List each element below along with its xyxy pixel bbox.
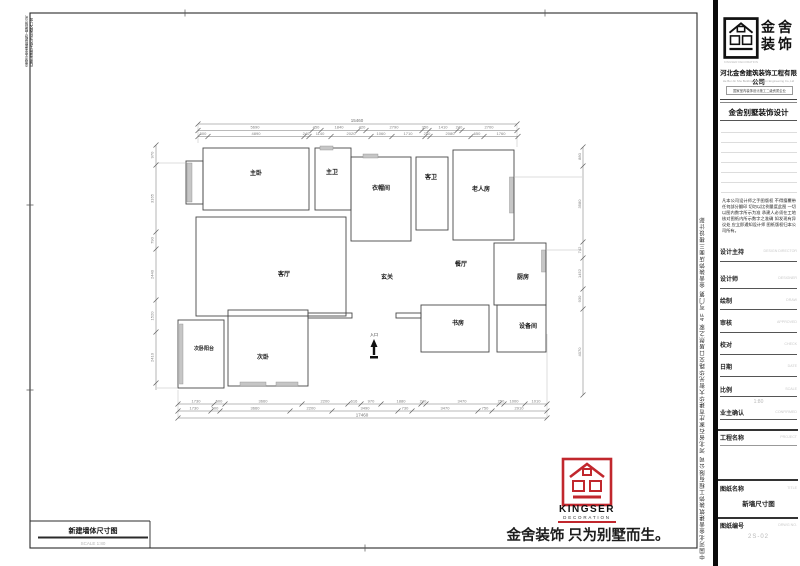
field-label: 图纸名称 xyxy=(720,484,744,493)
company-slogan: 金舍装饰 只为别墅而生。 xyxy=(478,524,698,545)
room-label-kitchen: 厨房 xyxy=(517,273,529,281)
drawing-number-value: 2S-02 xyxy=(717,534,800,540)
bottom-title-label: 新建墙体尺寸图 xyxy=(69,526,118,535)
room-labels: 主卧 主卫 衣帽间 客卫 老人房 客厅 玄关 餐厅 厨房 书房 设备间 次卧 次… xyxy=(194,168,537,361)
dim-label: 3470 xyxy=(458,399,468,404)
field-label: 绘制 xyxy=(720,296,732,305)
company-name-en: He Bei Jin She Building Decoration Engin… xyxy=(717,79,800,83)
dim-label: 2200 xyxy=(307,406,317,411)
kingser-logo-text: KINGSER DECORATION xyxy=(549,504,625,520)
dim-label: 3470 xyxy=(441,406,451,411)
kingser-logo-icon xyxy=(561,457,613,507)
dim-label: 790 xyxy=(150,236,155,243)
field-label: 审核 xyxy=(720,318,732,327)
field-drawing-number: 图纸编号 DRWG NO. xyxy=(720,521,797,531)
panel-rule xyxy=(720,99,797,100)
dim-label: 730 xyxy=(402,406,409,411)
field-design-director: 设计主持 DESIGN DIRECTOR xyxy=(720,247,797,262)
copyright-notice: 凡本公司设计师之手图版权 不得擅覆带任何部分翻印 切勿以比例量度此图 一切以图内… xyxy=(722,198,796,235)
room-label-living-room: 客厅 xyxy=(277,270,290,278)
dim-label: 1730 xyxy=(192,399,202,404)
dim-label: 2910 xyxy=(515,406,525,411)
panel-rule xyxy=(720,102,797,103)
field-en: TITLE xyxy=(787,486,797,490)
empty-row-line xyxy=(721,162,797,163)
room-label-balcony: 次卧阳台 xyxy=(194,345,214,352)
dim-label: 616 xyxy=(351,399,358,404)
dim-label: 250 xyxy=(498,399,505,404)
field-label: 日期 xyxy=(720,362,732,371)
window-hatches xyxy=(180,146,546,386)
dim-label: 5690 xyxy=(251,125,261,130)
room-label-foyer: 玄关 xyxy=(381,273,393,281)
department-title: 金舍别墅装饰设计 xyxy=(717,107,800,118)
dim-label: 1000 xyxy=(510,399,520,404)
dim-label: 2020 xyxy=(347,131,357,136)
dim-label: 1880 xyxy=(397,399,407,404)
dim-label: 17460 xyxy=(356,413,369,418)
dim-label: 970 xyxy=(368,399,375,404)
dim-label: 1520 xyxy=(150,311,155,321)
dim-label: 1730 xyxy=(190,406,200,411)
panel-thick-rule xyxy=(718,517,798,519)
left-edge-vertical-text: 中国河北金舍建筑装饰工程有限公司 石家庄市建华大街与光华路交口 金舍装饰设计部 xyxy=(24,15,33,67)
field-en: DRAW xyxy=(786,298,797,302)
entrance-arrow xyxy=(370,339,378,359)
field-label: 比例 xyxy=(720,385,732,394)
jinshe-logo-icon xyxy=(723,17,759,59)
field-date: 日期 DATE xyxy=(720,362,797,377)
dim-label: 500 xyxy=(212,406,219,411)
dimension-lines xyxy=(156,124,583,418)
dimension-ticks xyxy=(154,122,586,421)
dim-label: 240 xyxy=(424,131,431,136)
dim-label: 240 xyxy=(456,125,463,130)
kingser-name: KINGSER xyxy=(549,504,625,515)
dim-label: 2200 xyxy=(321,399,331,404)
dim-label: 1452 xyxy=(577,268,582,278)
bottom-title-scale: SCALE 1:80 xyxy=(81,541,106,546)
dim-label: 1010 xyxy=(532,399,542,404)
field-en: SCALE xyxy=(785,387,797,391)
field-label: 业主确认 xyxy=(720,408,744,417)
field-check: 校对 CHECK xyxy=(720,340,797,355)
dim-label: 350 xyxy=(422,125,429,130)
room-label-second-bedroom: 次卧 xyxy=(257,353,269,361)
dim-label: 1140 xyxy=(316,131,325,136)
field-en: CONFIRMED xyxy=(775,410,797,414)
dim-label: 4890 xyxy=(252,131,262,136)
dim-label: 970 xyxy=(150,151,155,158)
room-label-utility-room: 设备间 xyxy=(519,322,537,330)
dim-label: 240 xyxy=(420,399,427,404)
dim-label: 2080 xyxy=(446,131,456,136)
dim-label: 1710 xyxy=(404,131,414,136)
brand-wordmark: 金舍 装饰 xyxy=(761,19,795,53)
field-label: 设计主持 xyxy=(720,247,744,256)
extension-lines xyxy=(157,125,582,417)
field-project-name: 工程名称 PROJECT xyxy=(720,433,797,446)
field-scale: 比例 SCALE xyxy=(720,385,797,397)
entrance-label: 入口 xyxy=(370,332,378,337)
field-en: DESIGNER xyxy=(778,276,797,280)
room-label-cloakroom: 衣帽间 xyxy=(372,184,390,192)
drawing-title-value: 新墙尺寸图 xyxy=(717,498,800,508)
kingser-underline xyxy=(558,521,616,523)
field-designer: 设计师 DESIGNER xyxy=(720,274,797,289)
empty-row-line xyxy=(721,172,797,173)
dim-label: 2790 xyxy=(390,125,400,130)
dim-label: 742 xyxy=(577,246,582,253)
empty-row-line xyxy=(721,142,797,143)
room-label-master-bedroom: 主卧 xyxy=(250,169,262,177)
panel-rule xyxy=(720,120,797,121)
empty-row-line xyxy=(721,152,797,153)
certification-line: 国家室内装饰设计施工二级资质企业 xyxy=(726,86,793,95)
dim-label: 3165 xyxy=(150,193,155,203)
floorplan-drawing: 15460 5690 450 1840 420 2790 350 1410 24… xyxy=(0,0,800,566)
room-label-study: 书房 xyxy=(452,319,464,327)
dim-label: 2700 xyxy=(485,125,495,130)
scale-value: 1:80 xyxy=(717,399,800,405)
dim-label: 650 xyxy=(474,131,481,136)
panel-thick-rule xyxy=(718,479,798,481)
field-drawing-title: 图纸名称 TITLE xyxy=(720,484,797,495)
dimension-labels: 15460 5690 450 1840 420 2790 350 1410 24… xyxy=(150,118,583,418)
field-label: 校对 xyxy=(720,340,732,349)
dim-label: 420 xyxy=(359,125,366,130)
dim-label: 1410 xyxy=(439,125,449,130)
brand-line1: 金舍 xyxy=(761,19,795,36)
room-label-guest-bath: 客卫 xyxy=(424,173,437,181)
room-label-elder-room: 老人房 xyxy=(471,185,490,193)
field-label: 图纸编号 xyxy=(720,521,744,530)
empty-row-line xyxy=(721,192,797,193)
brand-line2: 装饰 xyxy=(761,36,795,53)
panel-thick-rule xyxy=(718,429,798,431)
field-draw: 绘制 DRAW xyxy=(720,296,797,310)
drawing-sheet: 15460 5690 450 1840 420 2790 350 1410 24… xyxy=(0,0,800,566)
empty-row-line xyxy=(721,182,797,183)
field-owner-confirm: 业主确认 CONFIRMED xyxy=(720,408,797,420)
field-label: 设计师 xyxy=(720,274,738,283)
field-en: CHECK xyxy=(784,342,797,346)
dim-label: 15460 xyxy=(351,118,364,123)
field-en: APPROVED xyxy=(777,320,797,324)
field-approved: 审核 APPROVED xyxy=(720,318,797,333)
dim-label: 240 xyxy=(303,131,310,136)
kingser-sub: DECORATION xyxy=(549,515,625,520)
dim-label: 880 xyxy=(577,152,582,159)
dim-label: 1060 xyxy=(377,131,387,136)
dim-label: 450 xyxy=(313,125,320,130)
bottom-title-block: 新建墙体尺寸图 SCALE 1:80 xyxy=(30,521,150,548)
field-en: DATE xyxy=(788,364,797,368)
field-en: PROJECT xyxy=(780,435,797,439)
dim-label: 500 xyxy=(216,399,223,404)
empty-row-line xyxy=(721,132,797,133)
dim-label: 930 xyxy=(577,295,582,302)
side-vertical-address: 中国河北金舍建筑装饰工程有限公司 河北省石家庄市建华大街光华路交口居然之家 4F… xyxy=(699,8,712,560)
company-name: 河北金舍建筑装饰工程有限公司 xyxy=(717,68,800,86)
dim-label: 2440 xyxy=(150,269,155,279)
dim-label: 750 xyxy=(482,406,489,411)
dim-label: 3660 xyxy=(251,406,261,411)
field-en: DRWG NO. xyxy=(778,523,797,527)
room-label-master-bath: 主卫 xyxy=(326,168,338,176)
dim-label: 1840 xyxy=(335,125,345,130)
brand-tiny-en: KINGSER DECORATION xyxy=(721,60,761,64)
room-label-dining-room: 餐厅 xyxy=(454,260,467,268)
walls xyxy=(178,148,546,388)
dim-label: 3660 xyxy=(259,399,269,404)
dim-label: 4070 xyxy=(577,347,582,357)
dim-label: 2410 xyxy=(150,352,155,362)
dim-label: 500 xyxy=(200,131,207,136)
dim-label: 3580 xyxy=(577,199,582,209)
field-en: DESIGN DIRECTOR xyxy=(764,249,797,253)
field-label: 工程名称 xyxy=(720,433,744,442)
dim-label: 1760 xyxy=(497,131,507,136)
dim-label: 3490 xyxy=(361,406,371,411)
